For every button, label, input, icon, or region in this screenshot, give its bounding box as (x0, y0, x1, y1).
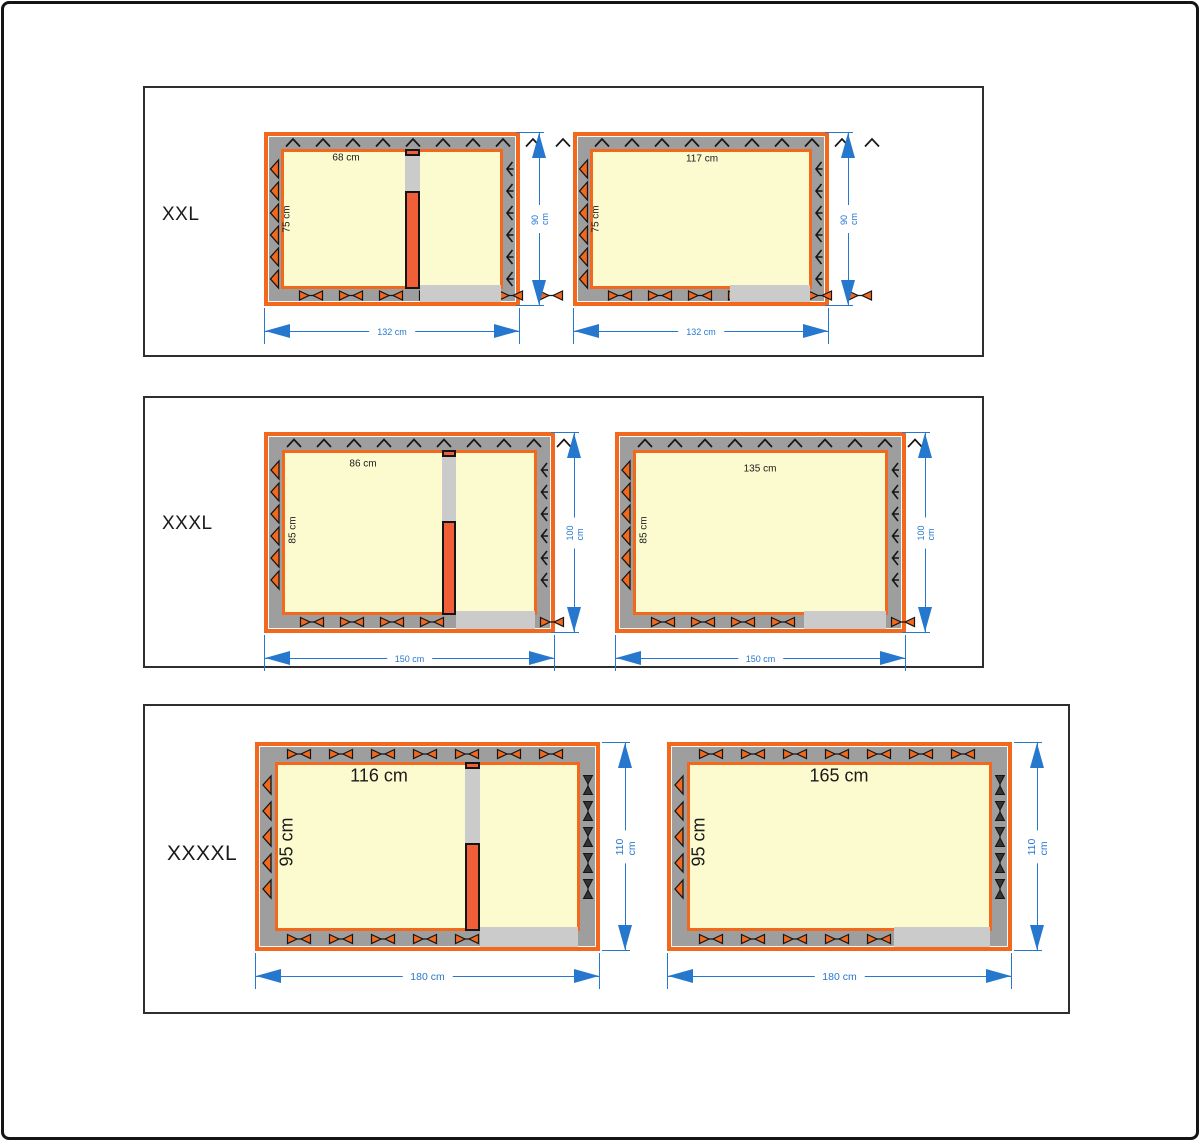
inner-height-label: 75 cm (282, 205, 293, 232)
outer-width-value: 180 cm (814, 971, 864, 983)
arrow-left-icon (574, 324, 599, 338)
insulated-wall-left (619, 450, 633, 600)
outer-width-dimension: 132 cm (573, 308, 829, 348)
extension-line (902, 632, 930, 633)
floor-area (281, 149, 503, 289)
outer-height-dimension: 100 cm (559, 432, 601, 633)
outer-height-value: 90 cm (839, 205, 859, 233)
insulated-wall-right (812, 149, 825, 299)
arrow-up-icon (841, 133, 855, 158)
arrow-down-icon (918, 607, 932, 632)
insulated-wall-right (888, 450, 902, 600)
outer-height-value: 100 cm (916, 517, 936, 548)
inner-height-label: 95 cm (689, 817, 710, 866)
outer-width-dimension: 180 cm (255, 953, 600, 993)
floor-area (275, 762, 580, 931)
inner-height-label: 85 cm (639, 516, 650, 543)
floor-area (282, 450, 537, 615)
entrance-opening (730, 285, 810, 302)
arrow-up-icon (618, 743, 632, 768)
outer-height-value: 110 cm (614, 830, 638, 863)
arrow-up-icon (918, 433, 932, 458)
extension-line (905, 635, 906, 671)
partition-cap (465, 762, 480, 769)
partition-cap (405, 149, 420, 156)
inner-width-label: 117 cm (686, 154, 718, 165)
outer-height-value: 100 cm (565, 517, 585, 548)
outer-width-dimension: 132 cm (264, 308, 520, 348)
partition-wall (442, 450, 456, 615)
outer-width-value: 150 cm (738, 654, 784, 664)
insulated-wall-right (992, 762, 1008, 912)
arrow-right-icon (803, 324, 828, 338)
insulated-wall-top (282, 436, 582, 450)
extension-line (825, 305, 853, 306)
insulated-wall-left (268, 149, 281, 299)
inner-width-label: 135 cm (744, 464, 777, 475)
outer-height-dimension: 90 cm (524, 132, 566, 306)
outer-height-dimension: 110 cm (1022, 742, 1064, 951)
floorplan-xxl-partitioned: 68 cm 75 cm (264, 132, 520, 306)
extension-line (828, 308, 829, 344)
arrow-right-icon (880, 651, 905, 665)
extension-line (551, 632, 579, 633)
arrow-left-icon (256, 969, 281, 983)
partition-wall (465, 762, 480, 931)
inner-height-label: 95 cm (277, 817, 298, 866)
extension-line (1014, 950, 1042, 951)
arrow-left-icon (265, 324, 290, 338)
outer-width-value: 132 cm (369, 327, 415, 337)
floor-area (590, 149, 812, 289)
partition-panel (405, 191, 420, 289)
outer-width-value: 150 cm (387, 654, 433, 664)
insulated-wall-top (633, 436, 933, 450)
floorplan-xxxl-partitioned: 86 cm 85 cm (264, 432, 555, 633)
outer-width-value: 132 cm (678, 327, 724, 337)
extension-line (519, 308, 520, 344)
floorplan-xxxxl-open: 165 cm 95 cm (667, 742, 1012, 951)
arrow-left-icon (265, 651, 290, 665)
outer-height-dimension: 90 cm (833, 132, 875, 306)
outer-height-dimension: 100 cm (910, 432, 952, 633)
arrow-up-icon (1030, 743, 1044, 768)
entrance-opening (804, 611, 886, 629)
entrance-opening (420, 285, 501, 302)
entrance-opening (480, 927, 578, 947)
arrow-right-icon (986, 969, 1011, 983)
extension-line (602, 950, 630, 951)
arrow-down-icon (1030, 925, 1044, 950)
arrow-left-icon (616, 651, 641, 665)
insulated-wall-top (275, 746, 575, 762)
panel-xxxl: XXXL 86 cm 85 cm 135 cm 85 cm 150 cm 1 (143, 396, 984, 668)
insulated-wall-left (671, 762, 687, 912)
inner-width-label: 165 cm (809, 766, 868, 787)
arrow-up-icon (532, 133, 546, 158)
outer-width-dimension: 150 cm (264, 635, 555, 675)
outer-height-value: 110 cm (1026, 830, 1050, 863)
insulated-wall-right (537, 450, 551, 600)
partition-cap (442, 450, 456, 457)
outer-width-dimension: 150 cm (615, 635, 906, 675)
arrow-down-icon (618, 925, 632, 950)
size-label: XXXL (162, 513, 213, 535)
floor-area (687, 762, 992, 931)
panel-xxxxl: XXXXL 116 cm 95 cm 165 cm 95 cm 180 cm (143, 704, 1070, 1014)
floorplan-xxxl-open: 135 cm 85 cm (615, 432, 906, 633)
inner-width-label: 68 cm (332, 153, 359, 164)
insulated-wall-left (268, 450, 282, 600)
partition-panel (465, 843, 480, 931)
insulated-wall-bottom (633, 615, 933, 629)
size-label: XXL (162, 204, 199, 226)
inner-width-label: 116 cm (350, 766, 408, 787)
arrow-left-icon (668, 969, 693, 983)
insulated-wall-left (577, 149, 590, 299)
entrance-opening (894, 927, 990, 947)
arrow-up-icon (567, 433, 581, 458)
arrow-down-icon (532, 280, 546, 305)
insulated-wall-left (259, 762, 275, 912)
insulated-wall-top (687, 746, 987, 762)
partition-panel (442, 521, 456, 615)
extension-line (1011, 953, 1012, 989)
outer-height-dimension: 110 cm (610, 742, 652, 951)
insulated-wall-bottom (282, 615, 582, 629)
extension-line (516, 305, 544, 306)
floorplan-xxl-open: 117 cm 75 cm (573, 132, 829, 306)
extension-line (599, 953, 600, 989)
floor-area (633, 450, 888, 615)
inner-height-label: 85 cm (288, 516, 299, 543)
arrow-right-icon (494, 324, 519, 338)
extension-line (554, 635, 555, 671)
panel-xxl: XXL 68 cm 75 cm 117 cm 75 cm 132 cm (143, 86, 984, 357)
arrow-right-icon (574, 969, 599, 983)
arrow-down-icon (841, 280, 855, 305)
outer-width-value: 180 cm (402, 971, 452, 983)
arrow-right-icon (529, 651, 554, 665)
insulated-wall-right (580, 762, 596, 912)
outer-width-dimension: 180 cm (667, 953, 1012, 993)
entrance-opening (456, 611, 535, 629)
insulated-wall-right (503, 149, 516, 299)
size-label: XXXXL (167, 842, 237, 866)
inner-width-label: 86 cm (349, 459, 376, 470)
floorplan-xxxxl-partitioned: 116 cm 95 cm (255, 742, 600, 951)
outer-height-value: 90 cm (530, 205, 550, 233)
arrow-down-icon (567, 607, 581, 632)
partition-wall (405, 149, 420, 289)
inner-height-label: 75 cm (591, 205, 602, 232)
